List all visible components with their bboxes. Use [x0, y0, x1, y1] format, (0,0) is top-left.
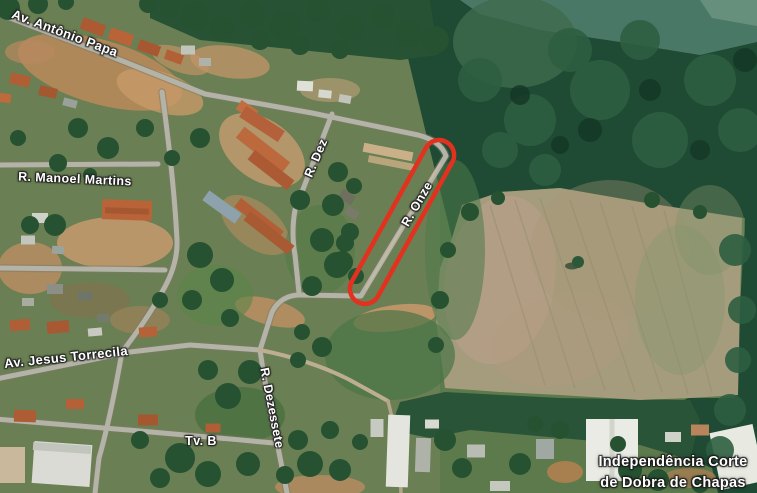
- poi-label[interactable]: Independência Corte de Dobra de Chapas: [598, 452, 747, 493]
- poi-label-line1: Independência Corte: [598, 452, 747, 473]
- road-label-tv-b: Tv. B: [185, 434, 217, 448]
- poi-label-line2: de Dobra de Chapas: [598, 473, 747, 493]
- satellite-imagery: [0, 0, 757, 493]
- map-canvas[interactable]: Av. Antônio Papa R. Manoel Martins R. De…: [0, 0, 757, 493]
